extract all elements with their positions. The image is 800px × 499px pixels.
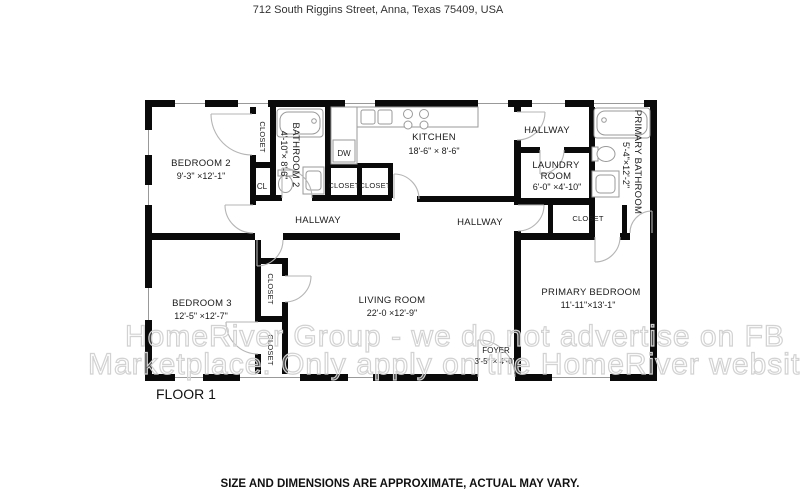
room-label-primary-bathroom: PRIMARY BATHROOM <box>632 110 643 215</box>
outer-wall-top <box>145 100 657 107</box>
room-label-hallway-left: HALLWAY <box>295 215 341 226</box>
room-label-closet-kitchen1: CLOSET <box>328 181 359 190</box>
room-label-living-room: LIVING ROOM <box>359 295 426 306</box>
room-label-bathroom2: BATHROOM 2 <box>290 122 301 187</box>
watermark-line2: Marketplace. Only apply on the HomeRiver… <box>88 348 800 382</box>
room-label-hallway-top: HALLWAY <box>524 125 570 136</box>
label-dw: DW <box>337 149 351 158</box>
room-label-hallway-right: HALLWAY <box>457 217 503 228</box>
dims-bedroom2: 9'-3" ×12'-1" <box>177 171 226 181</box>
address-title: 712 South Riggins Street, Anna, Texas 75… <box>0 4 756 16</box>
dims-primary-bedroom: 11'-11"×13'-1" <box>561 300 616 310</box>
dims-living-room: 22'-0 ×12'-9" <box>367 308 417 318</box>
room-label-cl: CL <box>257 182 268 191</box>
room-label-laundry2: ROOM <box>541 171 572 182</box>
dims-primary-bathroom: 5'-4"×12'-2" <box>621 142 631 188</box>
room-label-closet-kitchen2: CLOSET <box>359 181 390 190</box>
room-label-kitchen: KITCHEN <box>412 132 456 143</box>
kitchen-sink <box>361 110 375 124</box>
disclaimer-text: SIZE AND DIMENSIONS ARE APPROXIMATE, ACT… <box>0 478 800 490</box>
dims-laundry: 6'-0" ×4'-10" <box>533 182 582 192</box>
room-label-closet-hall: CLOSET <box>572 214 603 223</box>
room-label-bedroom2: BEDROOM 2 <box>171 158 231 169</box>
room-label-closet-b3-1: CLOSET <box>266 273 275 304</box>
room-label-bedroom3: BEDROOM 3 <box>172 298 232 309</box>
room-label-laundry1: LAUNDRY <box>532 160 580 171</box>
dims-kitchen: 18'-6" × 8'-6" <box>408 146 459 156</box>
floor-label: FLOOR 1 <box>156 386 216 402</box>
room-label-closet-bedroom2: CLOSET <box>258 121 267 152</box>
dims-bathroom2: 4'-10"× 8'-6" <box>279 131 289 180</box>
room-label-primary-bedroom: PRIMARY BEDROOM <box>541 287 640 298</box>
